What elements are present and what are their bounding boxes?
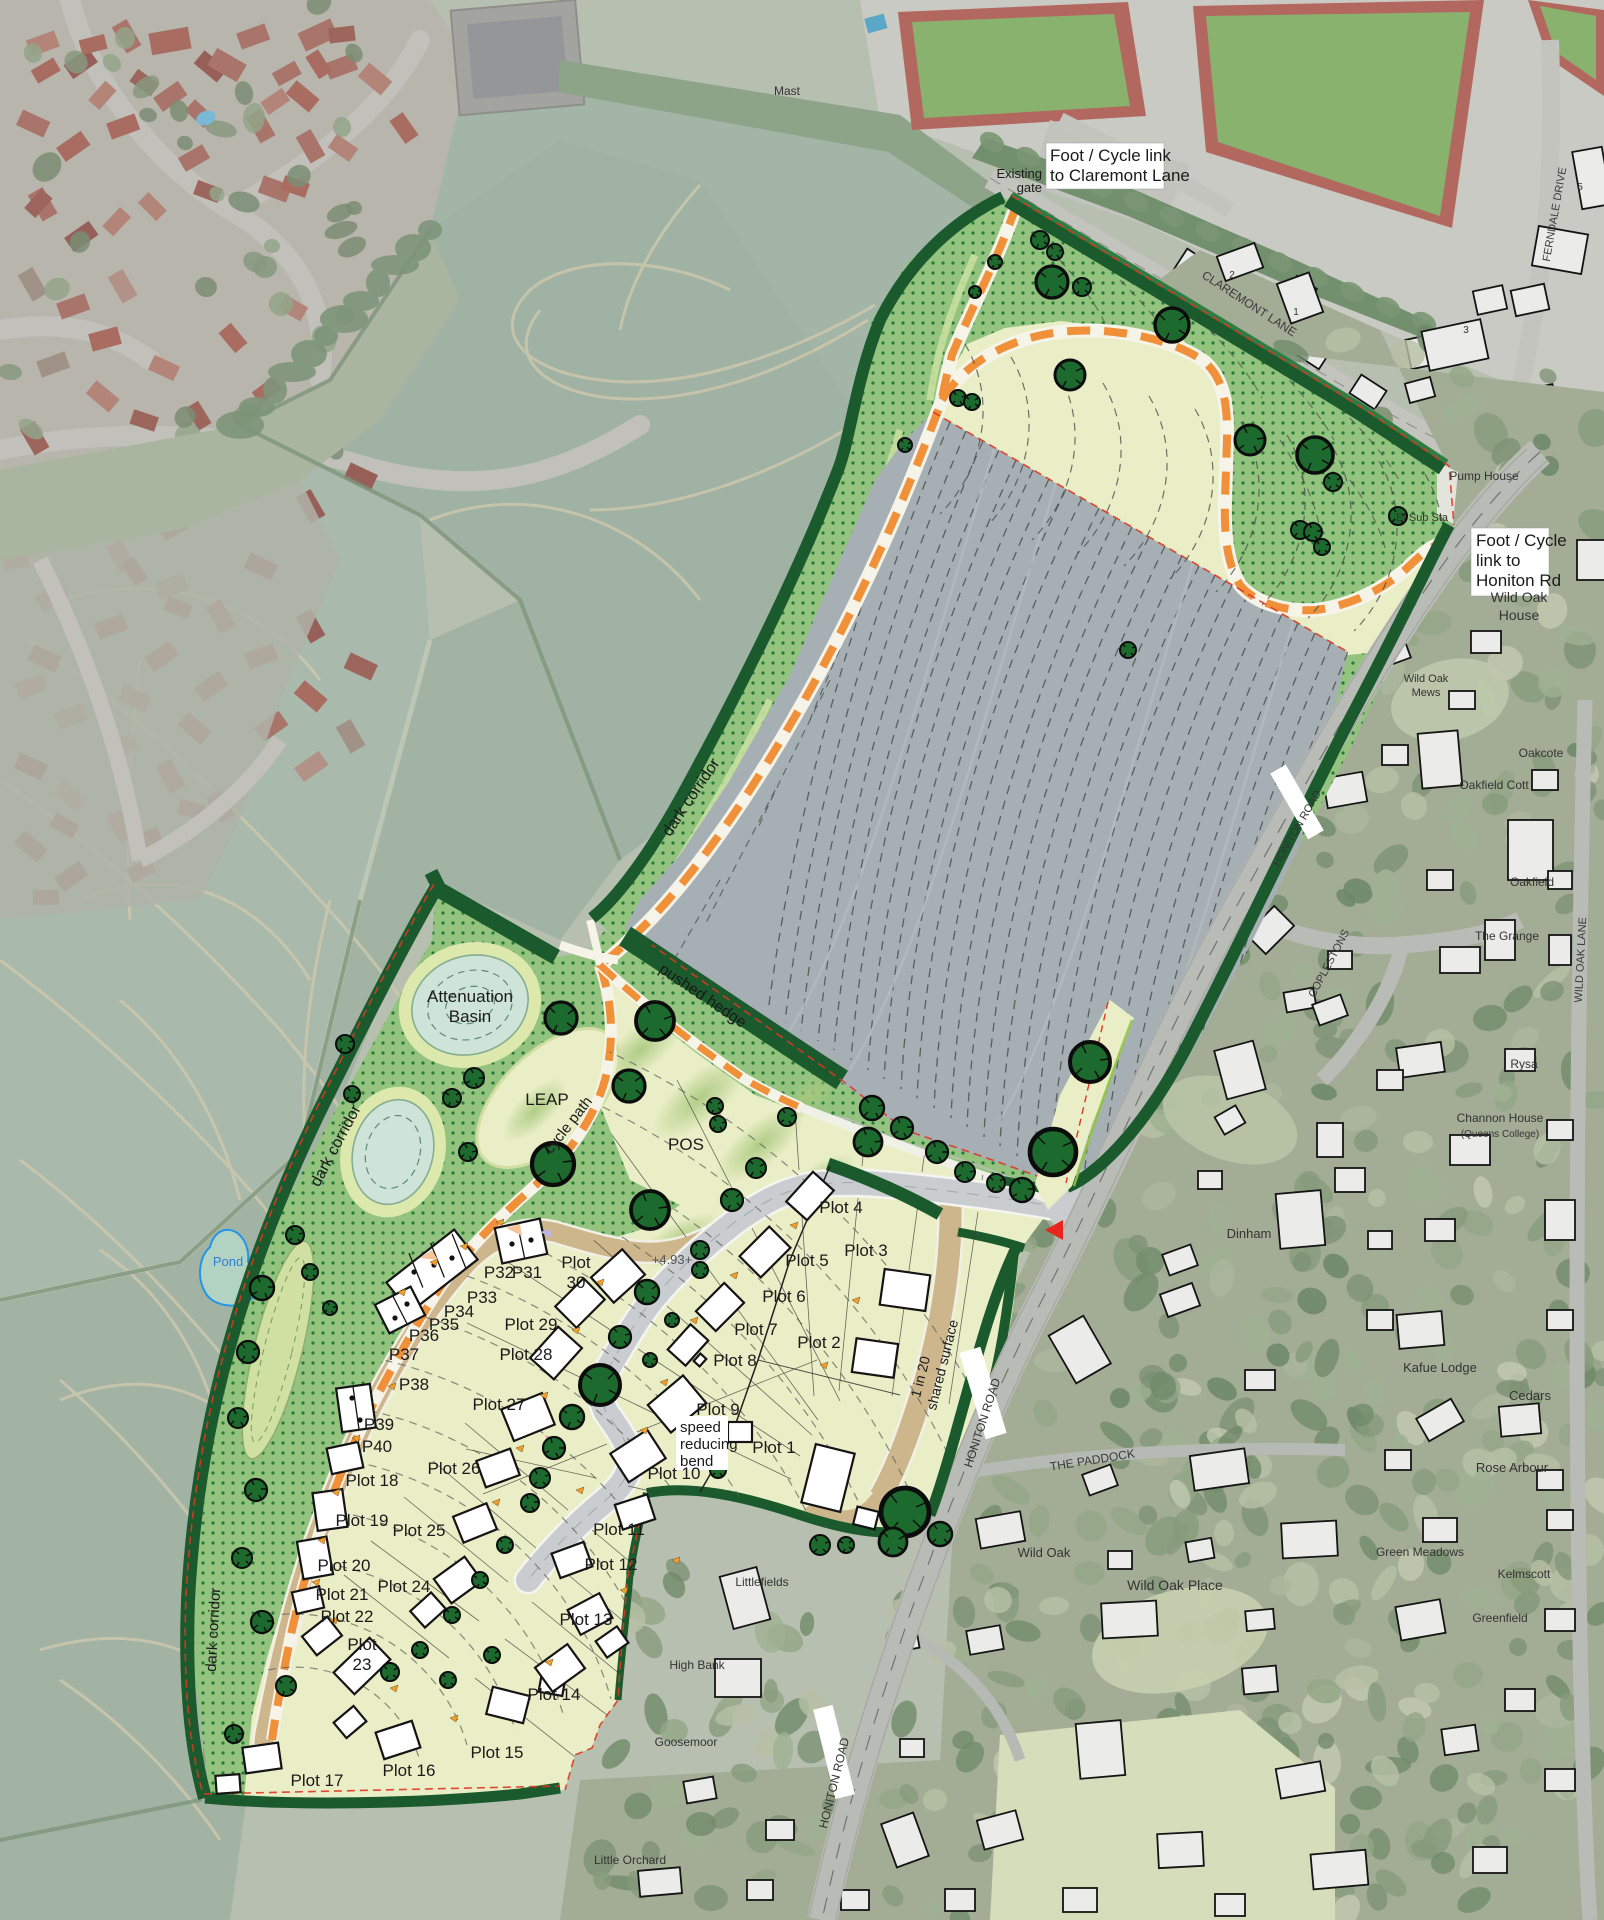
svg-text:Plot 13: Plot 13 xyxy=(560,1610,613,1629)
svg-text:Plot 17: Plot 17 xyxy=(291,1771,344,1790)
svg-text:Plot 6: Plot 6 xyxy=(762,1287,805,1306)
svg-text:Kelmscott: Kelmscott xyxy=(1498,1567,1551,1581)
svg-text:Channon House: Channon House xyxy=(1457,1111,1544,1125)
svg-text:Plot 24: Plot 24 xyxy=(378,1577,431,1596)
svg-text:Oakfield Cott: Oakfield Cott xyxy=(1459,778,1529,792)
svg-text:Kafue Lodge: Kafue Lodge xyxy=(1403,1360,1477,1375)
svg-text:POS: POS xyxy=(668,1135,704,1154)
svg-text:2: 2 xyxy=(1229,270,1235,281)
svg-text:Plot 10: Plot 10 xyxy=(648,1464,701,1483)
svg-text:Wild Oak: Wild Oak xyxy=(1404,673,1449,685)
svg-text:Plot 18: Plot 18 xyxy=(346,1471,399,1490)
svg-text:Plot 27: Plot 27 xyxy=(473,1395,526,1414)
svg-text:+4.93+: +4.93+ xyxy=(652,1252,693,1267)
svg-text:Wild Oak: Wild Oak xyxy=(1018,1545,1071,1560)
svg-text:speed: speed xyxy=(680,1419,721,1436)
svg-text:reducing: reducing xyxy=(680,1436,738,1453)
svg-text:(Queens College): (Queens College) xyxy=(1461,1129,1539,1140)
svg-text:30: 30 xyxy=(567,1273,586,1292)
svg-text:P37: P37 xyxy=(389,1345,419,1364)
svg-text:Greenfield: Greenfield xyxy=(1472,1611,1527,1625)
svg-text:Littlefields: Littlefields xyxy=(735,1575,788,1589)
svg-text:Plot 26: Plot 26 xyxy=(428,1459,481,1478)
svg-text:23: 23 xyxy=(353,1655,372,1674)
svg-text:Plot: Plot xyxy=(561,1253,591,1272)
svg-text:LEAP: LEAP xyxy=(525,1090,568,1109)
svg-text:Plot 7: Plot 7 xyxy=(734,1320,777,1339)
svg-text:Foot / Cycle: Foot / Cycle xyxy=(1476,531,1567,550)
svg-text:Plot 21: Plot 21 xyxy=(316,1585,369,1604)
svg-text:El Sub Sta: El Sub Sta xyxy=(1396,512,1449,524)
svg-text:3: 3 xyxy=(1463,325,1469,336)
svg-text:to Claremont Lane: to Claremont Lane xyxy=(1050,166,1190,185)
svg-text:Oakcote: Oakcote xyxy=(1519,746,1564,760)
svg-text:Plot 16: Plot 16 xyxy=(383,1761,436,1780)
svg-text:Rysa: Rysa xyxy=(1510,1057,1538,1071)
svg-text:Plot 22: Plot 22 xyxy=(321,1607,374,1626)
svg-text:P39: P39 xyxy=(364,1415,394,1434)
svg-text:Plot 9: Plot 9 xyxy=(696,1400,739,1419)
svg-text:Plot 25: Plot 25 xyxy=(393,1521,446,1540)
svg-text:Pond: Pond xyxy=(213,1254,243,1269)
svg-text:Mast: Mast xyxy=(774,84,801,98)
svg-text:Plot 15: Plot 15 xyxy=(471,1743,524,1762)
svg-text:Plot 20: Plot 20 xyxy=(318,1556,371,1575)
svg-text:5: 5 xyxy=(1577,182,1583,193)
svg-text:1: 1 xyxy=(1293,307,1299,318)
svg-text:P38: P38 xyxy=(399,1375,429,1394)
svg-text:Plot 2: Plot 2 xyxy=(797,1333,840,1352)
svg-text:gate: gate xyxy=(1017,180,1042,195)
svg-text:High Bank: High Bank xyxy=(669,1658,725,1672)
svg-text:Plot 19: Plot 19 xyxy=(336,1511,389,1530)
svg-text:P32: P32 xyxy=(484,1263,514,1282)
svg-text:Plot 14: Plot 14 xyxy=(528,1685,581,1704)
svg-text:Plot 3: Plot 3 xyxy=(844,1241,887,1260)
svg-text:Pump House: Pump House xyxy=(1449,469,1519,483)
svg-text:P31: P31 xyxy=(512,1263,542,1282)
svg-text:Honiton Rd: Honiton Rd xyxy=(1476,571,1561,590)
svg-text:Plot 11: Plot 11 xyxy=(593,1520,645,1539)
svg-text:Wild Oak: Wild Oak xyxy=(1491,589,1549,605)
svg-text:Basin: Basin xyxy=(449,1007,492,1026)
svg-text:Foot / Cycle link: Foot / Cycle link xyxy=(1050,146,1171,165)
svg-text:House: House xyxy=(1499,607,1540,623)
svg-text:Rose Arbour: Rose Arbour xyxy=(1476,1460,1549,1475)
svg-text:P36: P36 xyxy=(409,1326,439,1345)
svg-text:Wild Oak Place: Wild Oak Place xyxy=(1127,1577,1223,1593)
svg-text:Plot 28: Plot 28 xyxy=(500,1345,553,1364)
svg-text:The Grange: The Grange xyxy=(1475,929,1539,943)
svg-text:Plot 5: Plot 5 xyxy=(785,1251,828,1270)
svg-text:link to: link to xyxy=(1476,551,1520,570)
svg-text:Plot 8: Plot 8 xyxy=(713,1351,756,1370)
svg-text:Goosemoor: Goosemoor xyxy=(655,1735,718,1749)
svg-text:Attenuation: Attenuation xyxy=(427,987,513,1006)
svg-text:Existing: Existing xyxy=(996,166,1042,181)
svg-text:Plot 1: Plot 1 xyxy=(752,1438,795,1457)
svg-text:Plot 4: Plot 4 xyxy=(819,1198,862,1217)
svg-text:Dinham: Dinham xyxy=(1227,1226,1272,1241)
svg-text:Oakfield: Oakfield xyxy=(1510,875,1554,889)
svg-text:Plot: Plot xyxy=(347,1635,377,1654)
svg-text:Cedars: Cedars xyxy=(1509,1388,1551,1403)
svg-text:Little Orchard: Little Orchard xyxy=(594,1853,666,1867)
svg-text:Green Meadows: Green Meadows xyxy=(1376,1545,1464,1559)
svg-text:Plot 12: Plot 12 xyxy=(585,1555,638,1574)
svg-text:P40: P40 xyxy=(362,1437,392,1456)
svg-text:Plot 29: Plot 29 xyxy=(505,1315,558,1334)
svg-text:Mews: Mews xyxy=(1412,687,1441,699)
